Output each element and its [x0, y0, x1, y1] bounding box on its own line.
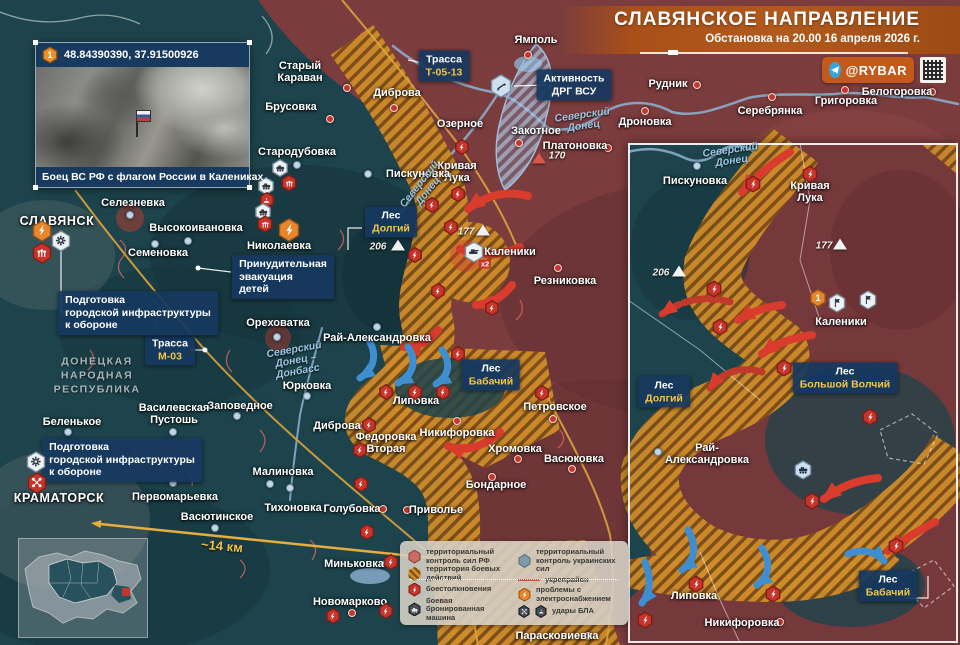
town-label: Беленькое	[43, 416, 102, 428]
settlement-marker	[211, 524, 219, 532]
settlement-marker	[343, 84, 351, 92]
annotation-line: ДРГ ВСУ	[544, 85, 605, 98]
settlement-marker	[373, 323, 381, 331]
town-label: Диброва	[373, 87, 421, 99]
annotation-line: эвакуация	[239, 271, 327, 284]
legend-item-power: проблемы с электроснабжением	[518, 586, 620, 603]
legend-item-rf: территориальный контроль сил РФ	[408, 548, 510, 565]
elevation-triangle	[532, 153, 546, 164]
town-label: Васютинское	[181, 511, 253, 523]
town-label: Стародубовка	[258, 146, 336, 158]
settlement-marker	[326, 115, 334, 123]
town-label: Николаевка	[247, 240, 311, 252]
map-annotation-box: ТрассаТ-05-13	[419, 50, 470, 81]
town-label: Резниковка	[534, 275, 597, 287]
map-annotation-box: Подготовкагородской инфраструктурык обор…	[42, 438, 202, 482]
town-label: Озерное	[437, 118, 483, 130]
photo-inset: 1 48.84390390, 37.91500926 Боец ВС РФ с …	[35, 42, 250, 188]
telegram-icon	[829, 62, 841, 78]
settlement-marker	[515, 139, 523, 147]
town-label: Рудник	[648, 78, 687, 90]
lightning-icon	[354, 476, 369, 492]
annotation-line: Лес	[469, 362, 513, 375]
settlement-marker	[286, 484, 294, 492]
photo-header: 1 48.84390390, 37.91500926	[36, 43, 249, 67]
settlement-marker	[273, 333, 281, 341]
lightning-icon	[326, 608, 341, 624]
settlement-marker	[364, 170, 372, 178]
map-annotation-box: АктивностьДРГ ВСУ	[537, 69, 612, 100]
elevation-value: 177	[458, 227, 475, 238]
annotation-line: Бабачий	[469, 375, 513, 388]
legend-label: удары БЛА	[552, 607, 594, 616]
gear-icon	[51, 230, 71, 252]
town-label: Каленики	[484, 246, 536, 258]
town-label: Рай- Александровка	[665, 442, 749, 466]
town-label: Дроновка	[618, 116, 671, 128]
map-legend: территориальный контроль сил РФтерритори…	[400, 541, 628, 625]
lightning-icon	[444, 219, 459, 235]
lightning-icon	[379, 384, 394, 400]
lightning-icon	[451, 186, 466, 202]
rifle-icon	[490, 74, 512, 98]
map-subtitle: Обстановка на 20.00 16 апреля 2026 г.	[705, 33, 920, 45]
city-label: КРАМАТОРСК	[14, 492, 104, 506]
map-stage: ЯмпольСтарый КараванДиброваБрусовкаОзерн…	[0, 0, 960, 645]
map-annotation-box: ТрассаМ-03	[145, 334, 195, 365]
photo-image	[36, 67, 249, 167]
town-label: Семеновка	[128, 247, 188, 259]
lightning-icon	[455, 139, 470, 155]
town-label: Малиновка	[253, 466, 314, 478]
settlement-marker	[524, 51, 532, 59]
town-label: Ямполь	[515, 34, 558, 46]
lightning-icon	[888, 537, 904, 554]
river-label: Северский Донец – Донбасс	[266, 340, 327, 382]
annotation-line: Лес	[645, 379, 683, 392]
annotation-line: к обороне	[65, 319, 211, 332]
ukraine-locator-map	[18, 538, 148, 638]
legend-item-afv: боевая бронированная машина	[408, 597, 510, 623]
legend-label: территориальный контроль сил РФ	[426, 548, 510, 565]
annotation-line: к обороне	[49, 466, 195, 479]
settlement-marker	[693, 162, 701, 170]
town-label: Белогоровка	[862, 86, 933, 98]
settlement-marker	[303, 392, 311, 400]
map-annotation-box: ЛесДолгий	[638, 376, 690, 407]
annotation-line: Долгий	[372, 222, 410, 235]
settlement-marker	[184, 237, 192, 245]
town-label: Хромовка	[488, 443, 542, 455]
settlement-marker	[64, 428, 72, 436]
lightning-icon	[384, 554, 399, 570]
town-label: Юрковка	[283, 380, 332, 392]
lightning-icon	[637, 611, 653, 628]
legend-item-clash: боестолкновения	[408, 583, 510, 597]
settlement-marker	[348, 609, 356, 617]
arrows-icon	[281, 174, 297, 191]
lightning-icon	[408, 247, 423, 263]
lightning-icon	[535, 385, 550, 401]
town-label: Голубовка	[324, 503, 381, 515]
town-label: Миньковка	[324, 558, 384, 570]
town-label: Высокоивановка	[149, 222, 243, 234]
annotation-line: Трасса	[152, 337, 188, 350]
annotation-line: Принудительная	[239, 258, 327, 271]
settlement-marker	[554, 264, 562, 272]
settlement-marker	[641, 107, 649, 115]
lightning-icon	[278, 218, 300, 242]
settlement-marker	[549, 415, 557, 423]
town-label: Петровское	[523, 401, 587, 413]
flag-icon	[828, 293, 846, 312]
settlement-marker	[654, 448, 662, 456]
city-label: СЛАВЯНСК	[20, 215, 95, 229]
annotation-line: Бабачий	[866, 586, 910, 599]
town-label: Парасковиевка	[515, 630, 598, 642]
settlement-marker	[693, 81, 701, 89]
photo-marker-hex: 1	[42, 47, 58, 64]
town-label: Заповедное	[207, 400, 273, 412]
elevation-triangle	[391, 240, 405, 251]
map-annotation-box: ЛесБабачий	[859, 570, 917, 601]
elevation-value: 177	[816, 241, 833, 252]
settlement-marker	[568, 465, 576, 473]
map-annotation-box: Принудительнаяэвакуациядетей	[232, 255, 334, 299]
settlement-marker	[453, 417, 461, 425]
elevation-value: 206	[653, 268, 670, 279]
annotation-line: Трасса	[426, 53, 463, 66]
annotation-line: городской инфраструктуры	[65, 307, 211, 320]
town-label: Никифоровка	[705, 617, 780, 629]
lightning-icon	[431, 283, 446, 299]
lightning-icon	[745, 175, 761, 192]
town-label: Никифоровка	[420, 427, 495, 439]
elevation-triangle	[833, 239, 847, 250]
legend-column-1: территориальный контроль сил РФтерритори…	[408, 548, 510, 618]
elevation-triangle	[672, 266, 686, 277]
qr-code	[920, 57, 946, 83]
annotation-line: Активность	[544, 72, 605, 85]
legend-column-2: территориальный контроль украинских силу…	[518, 548, 620, 618]
annotation-line: Лес	[372, 209, 410, 222]
annotation-line: Т-05-13	[426, 66, 463, 79]
elevation-value: 206	[370, 242, 387, 253]
town-label: Ореховатка	[246, 317, 310, 329]
lightning-icon	[862, 408, 878, 425]
town-label: Старый Караван	[277, 60, 322, 84]
annotation-line: Долгий	[645, 392, 683, 405]
settlement-marker	[514, 455, 522, 463]
legend-label: территориальный контроль украинских сил	[536, 548, 620, 574]
town-label: Серебрянка	[738, 105, 803, 117]
town-label: Приволье	[409, 504, 463, 516]
annotation-line: М-03	[152, 350, 188, 363]
river-label: Северский Донец	[554, 106, 612, 136]
region-label: ДОНЕЦКАЯ НАРОДНАЯ РЕСПУБЛИКА	[54, 355, 141, 398]
lightning-icon	[804, 492, 820, 509]
lightning-icon	[706, 280, 722, 297]
settlement-marker	[768, 93, 776, 101]
settlement-marker	[233, 412, 241, 420]
town-label: Пискуновка	[663, 175, 727, 187]
legend-label: проблемы с электроснабжением	[536, 586, 620, 603]
vehicle-icon	[272, 159, 289, 177]
town-label: Бондарное	[466, 479, 527, 491]
elevation-value: 170	[549, 151, 566, 162]
legend-item-uav: удары БЛА	[518, 605, 620, 618]
legend-label: боевая бронированная машина	[426, 597, 510, 623]
flag-icon	[859, 290, 877, 309]
town-label: Брусовка	[265, 101, 317, 113]
settlement-marker	[841, 86, 849, 94]
photo-caption: Боец ВС РФ с флагом России в Калениках	[36, 167, 249, 187]
map-title: СЛАВЯНСКОЕ НАПРАВЛЕНИЕ	[614, 9, 920, 31]
annotation-line: Подготовка	[49, 441, 195, 454]
vehicle-icon	[794, 460, 812, 479]
lightning-icon	[776, 359, 792, 376]
town-label: Василевская Пустошь	[139, 402, 210, 426]
settlement-marker	[293, 161, 301, 169]
annotation-line: детей	[239, 283, 327, 296]
arrows-icon	[32, 242, 52, 264]
town-label: Диброва	[313, 420, 361, 432]
annotation-line: городской инфраструктуры	[49, 454, 195, 467]
num-icon: 1	[810, 289, 827, 307]
lightning-icon	[360, 524, 375, 540]
legend-label: боестолкновения	[426, 585, 491, 594]
channel-name: @RYBAR	[846, 63, 907, 78]
annotation-line: Большой Волчий	[800, 378, 891, 391]
russian-flag	[137, 111, 150, 121]
town-label: Закотное	[511, 125, 561, 137]
photo-coordinates: 48.84390390, 37.91500926	[64, 49, 199, 61]
map-annotation-box: ЛесБабачий	[462, 359, 520, 390]
lightning-icon	[765, 585, 781, 602]
legend-item-ua: территориальный контроль украинских сил	[518, 548, 620, 574]
count-badge: x2	[479, 260, 491, 269]
annotation-line: Лес	[800, 365, 891, 378]
map-annotation-box: Подготовкагородской инфраструктурык обор…	[58, 291, 218, 335]
town-label: Липовка	[671, 590, 717, 602]
elevation-triangle	[476, 225, 490, 236]
town-label: Первомарьевка	[132, 491, 218, 503]
annotation-line: Лес	[866, 573, 910, 586]
flag-pole	[136, 121, 138, 137]
settlement-marker	[266, 480, 274, 488]
town-label: Каленики	[815, 316, 867, 328]
legend-divider	[410, 579, 618, 580]
title-underline	[640, 52, 908, 54]
town-label: Селезневка	[101, 197, 165, 209]
lightning-icon	[485, 300, 500, 316]
map-annotation-box: ЛесБольшой Волчий	[793, 362, 898, 393]
river-label: Северский Донец	[702, 141, 760, 171]
town-label: Кривая Лука	[790, 180, 829, 204]
town-label: Тихоновка	[264, 502, 321, 514]
annotation-line: Подготовка	[65, 294, 211, 307]
lightning-icon	[712, 318, 728, 335]
town-label: Новомарково	[313, 596, 387, 608]
settlement-marker	[126, 211, 134, 219]
settlement-marker	[390, 104, 398, 112]
map-annotation-box: ЛесДолгий	[365, 206, 417, 237]
town-label: Рай-Александровка	[323, 332, 431, 344]
town-label: Васюковка	[544, 453, 604, 465]
settlement-marker	[169, 428, 177, 436]
channel-badge[interactable]: @RYBAR	[822, 57, 914, 83]
